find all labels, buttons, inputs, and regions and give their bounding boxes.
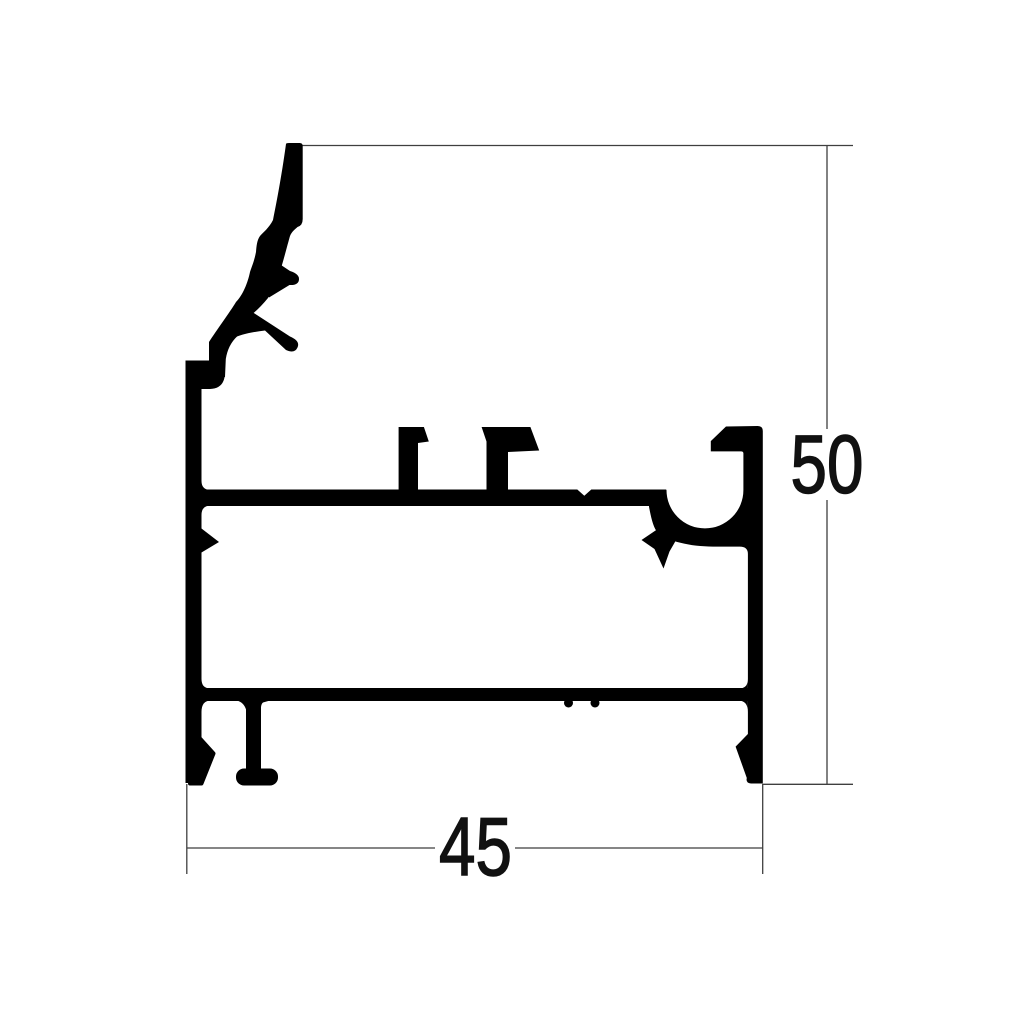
svg-text:45: 45 [439,800,512,893]
svg-text:50: 50 [791,417,864,510]
